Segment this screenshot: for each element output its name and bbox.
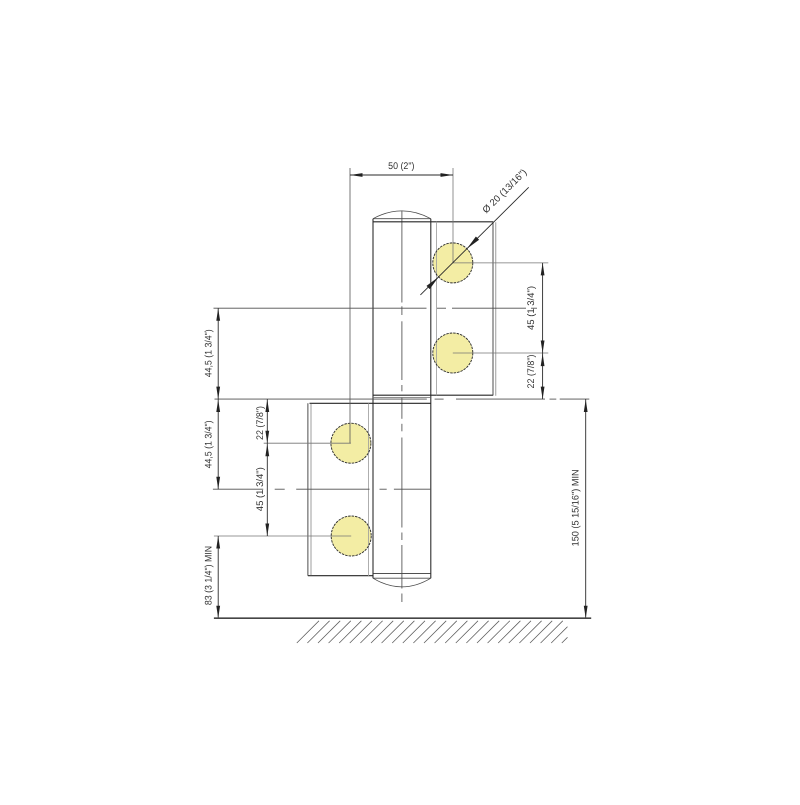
svg-text:22 (7/8"): 22 (7/8") bbox=[255, 406, 266, 440]
svg-text:45 (1 3/4"): 45 (1 3/4") bbox=[526, 286, 537, 330]
svg-text:22 (7/8"): 22 (7/8") bbox=[526, 355, 537, 389]
svg-text:44,5 (1 3/4"): 44,5 (1 3/4") bbox=[204, 329, 215, 377]
svg-text:50 (2"): 50 (2") bbox=[388, 161, 414, 172]
svg-text:45 (1 3/4"): 45 (1 3/4") bbox=[255, 467, 266, 511]
svg-text:83 (3 1/4") MIN: 83 (3 1/4") MIN bbox=[204, 546, 215, 605]
svg-text:44,5 (1 3/4"): 44,5 (1 3/4") bbox=[204, 420, 215, 468]
svg-text:150 (5 15/16") MIN: 150 (5 15/16") MIN bbox=[570, 469, 581, 546]
